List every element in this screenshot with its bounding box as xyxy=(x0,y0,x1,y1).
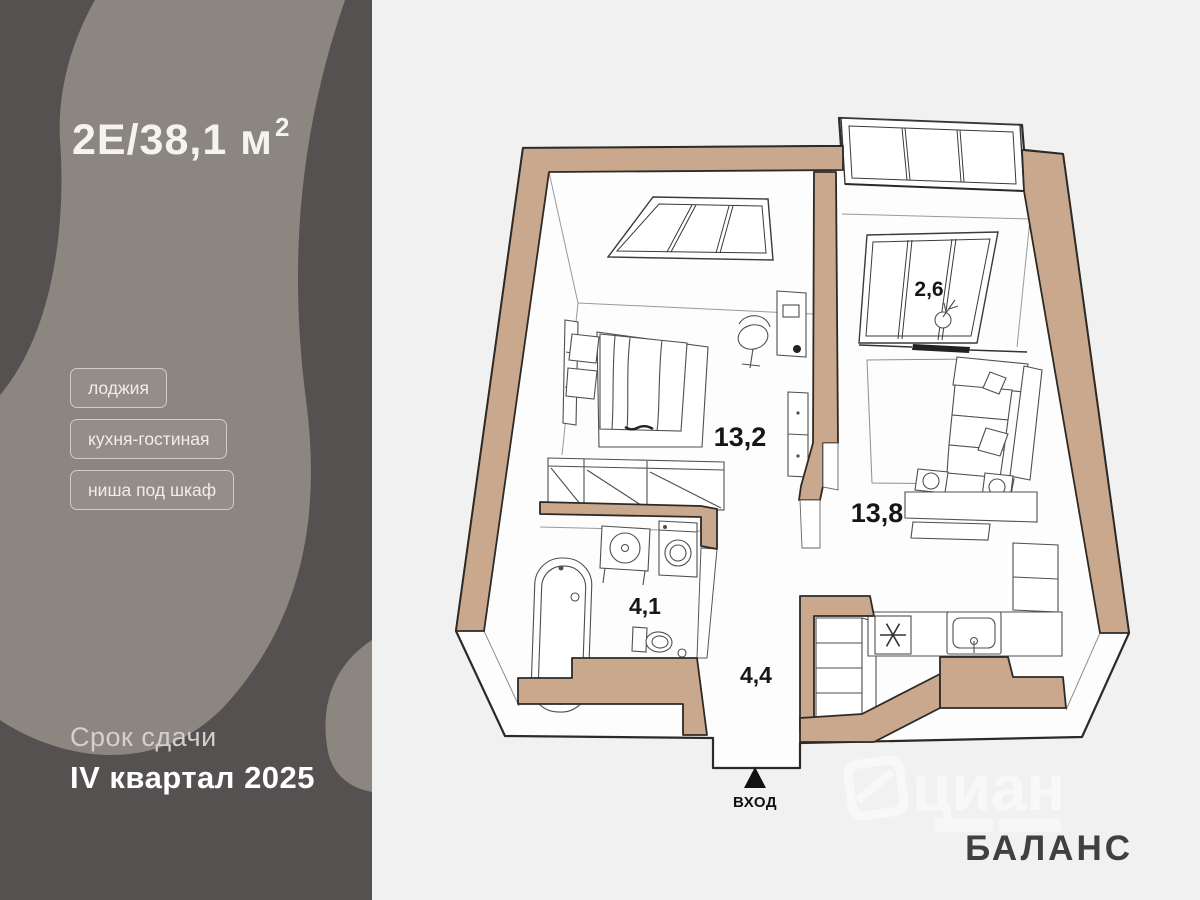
label-loggia-area: 2,6 xyxy=(914,278,943,301)
floorplan-card: 2Е/38,1 м2 лоджия кухня-гостиная ниша по… xyxy=(0,0,1200,900)
entrance-marker: ВХОД xyxy=(733,767,777,811)
desk xyxy=(777,291,806,357)
developer-logo: БАЛАНС xyxy=(965,829,1133,868)
label-kitchen-area: 13,8 xyxy=(851,498,904,528)
label-hallway-area: 4,4 xyxy=(740,662,772,688)
plant-icon xyxy=(935,312,951,328)
loggia-outer-window xyxy=(841,118,1024,191)
watermark: циан xyxy=(847,752,1065,832)
dresser xyxy=(788,392,808,477)
entrance-label: ВХОД xyxy=(733,794,777,811)
label-bathroom-area: 4,1 xyxy=(629,593,661,619)
hall-wardrobe xyxy=(816,618,876,718)
entrance-arrow-icon xyxy=(744,767,766,788)
coffee-table xyxy=(915,469,948,493)
floorplan-drawing: 13,2 13,8 2,6 4,1 4,4 ВХОД циан БАЛАНС xyxy=(0,0,1200,900)
label-bedroom-area: 13,2 xyxy=(714,422,767,452)
washing-machine xyxy=(659,521,697,577)
watermark-text: циан xyxy=(912,752,1065,824)
